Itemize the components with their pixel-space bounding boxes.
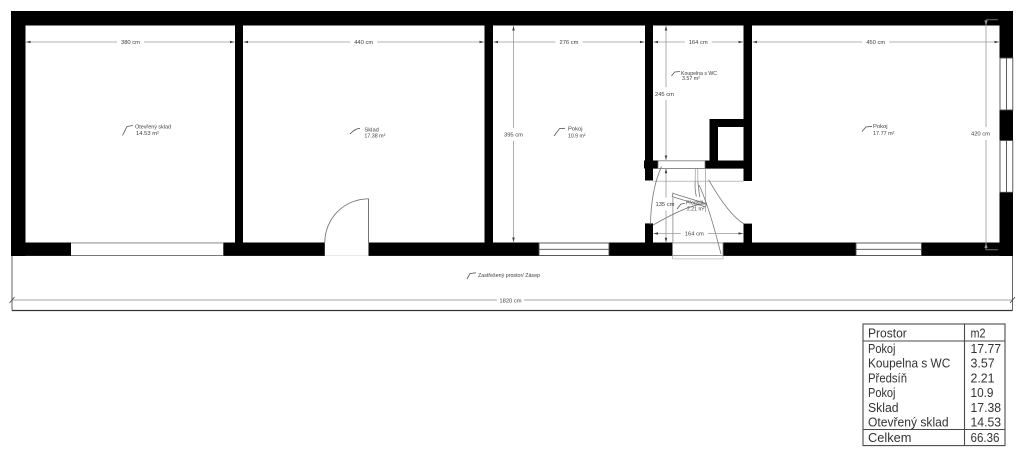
svg-text:Předsíň: Předsíň — [686, 200, 704, 206]
svg-text:Koupelna s WC: Koupelna s WC — [868, 356, 950, 371]
svg-text:Sklad: Sklad — [868, 400, 899, 415]
svg-text:Předsíň: Předsíň — [868, 371, 907, 386]
svg-text:420 cm: 420 cm — [971, 132, 990, 138]
svg-text:276 cm: 276 cm — [559, 40, 578, 46]
svg-text:380 cm: 380 cm — [121, 40, 140, 46]
svg-text:17.77: 17.77 — [971, 341, 1002, 356]
svg-text:17.38: 17.38 — [971, 400, 1002, 415]
svg-text:1820 cm: 1820 cm — [499, 298, 521, 304]
svg-text:m2: m2 — [971, 326, 986, 341]
svg-text:14.53 m²: 14.53 m² — [136, 131, 159, 137]
svg-text:10.9: 10.9 — [971, 385, 994, 400]
svg-text:Pokoj: Pokoj — [868, 341, 896, 356]
svg-text:164 cm: 164 cm — [685, 232, 704, 238]
svg-text:2.21: 2.21 — [971, 371, 995, 386]
svg-text:245 cm: 245 cm — [655, 92, 674, 98]
svg-text:3.57: 3.57 — [971, 356, 995, 371]
svg-text:440 cm: 440 cm — [354, 40, 373, 46]
svg-text:Otevřený sklad: Otevřený sklad — [868, 415, 949, 430]
svg-text:17.77 m²: 17.77 m² — [873, 131, 895, 137]
svg-text:164 cm: 164 cm — [689, 40, 708, 46]
svg-text:135 cm: 135 cm — [655, 202, 674, 208]
svg-text:10.9 m²: 10.9 m² — [568, 133, 586, 139]
svg-text:2.21 m²: 2.21 m² — [687, 207, 705, 213]
svg-text:Pokoj: Pokoj — [568, 127, 583, 133]
svg-text:Pokoj: Pokoj — [868, 385, 896, 400]
svg-text:66.36: 66.36 — [971, 430, 1000, 445]
svg-text:450 cm: 450 cm — [866, 40, 885, 46]
svg-text:395 cm: 395 cm — [504, 133, 523, 139]
svg-text:Pokoj: Pokoj — [873, 124, 888, 130]
svg-text:Zastřešený prostor/ Zásep: Zastřešený prostor/ Zásep — [478, 273, 540, 279]
svg-text:17.38 m²: 17.38 m² — [364, 133, 385, 139]
svg-text:Prostor: Prostor — [868, 326, 907, 341]
svg-text:Otevřený sklad: Otevřený sklad — [135, 124, 171, 130]
svg-text:14.53: 14.53 — [971, 415, 1002, 430]
svg-text:3.57 m²: 3.57 m² — [682, 76, 700, 82]
svg-text:Celkem: Celkem — [868, 430, 912, 445]
